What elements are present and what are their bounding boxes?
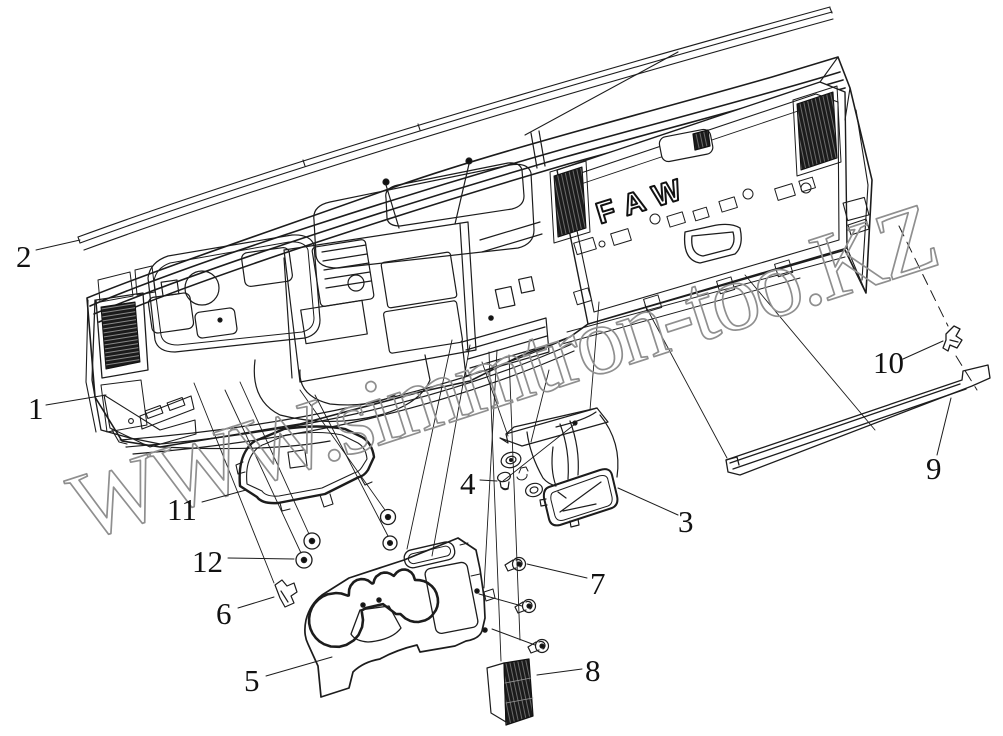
svg-text:8: 8 <box>585 653 601 688</box>
svg-text:5: 5 <box>244 663 260 698</box>
svg-text:11: 11 <box>167 492 197 527</box>
svg-text:10: 10 <box>873 345 904 380</box>
svg-text:2: 2 <box>16 239 32 274</box>
svg-text:1: 1 <box>28 391 44 426</box>
svg-text:7: 7 <box>590 566 606 601</box>
svg-text:9: 9 <box>926 451 942 486</box>
svg-text:6: 6 <box>216 596 232 631</box>
svg-text:12: 12 <box>192 544 223 579</box>
svg-text:3: 3 <box>678 504 694 539</box>
svg-text:4: 4 <box>460 466 476 501</box>
